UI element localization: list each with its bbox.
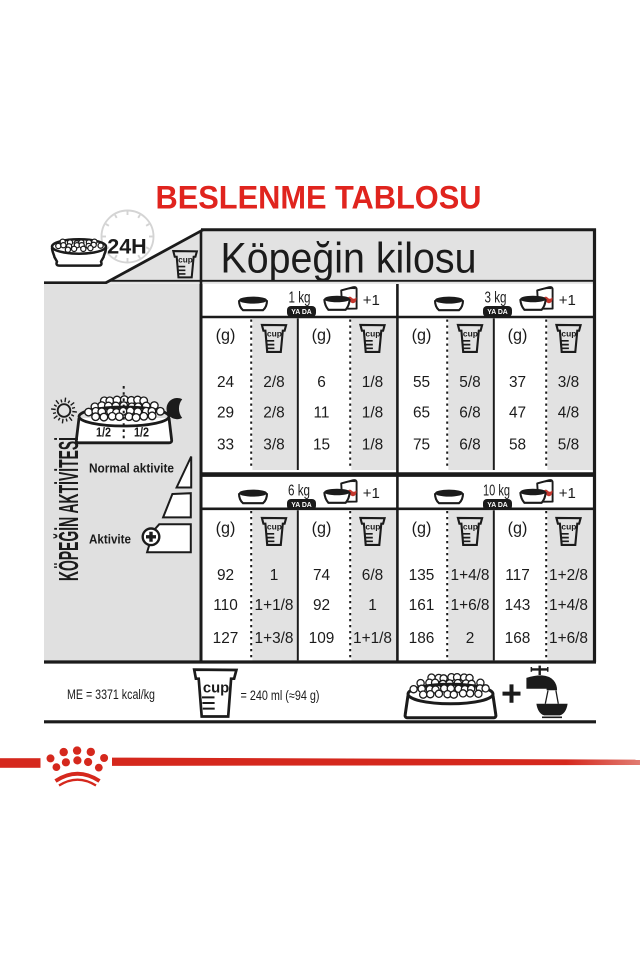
svg-text:(g): (g): [312, 520, 332, 538]
svg-text:+1: +1: [559, 485, 576, 502]
svg-text:6 kg: 6 kg: [288, 482, 310, 499]
svg-text:(g): (g): [216, 327, 236, 345]
svg-text:+1: +1: [363, 485, 380, 502]
svg-text:6/8: 6/8: [459, 437, 480, 454]
svg-text:1+3/8: 1+3/8: [255, 630, 294, 647]
svg-text:11: 11: [314, 405, 330, 422]
svg-text:74: 74: [313, 567, 331, 584]
svg-text:117: 117: [505, 567, 530, 584]
svg-text:(g): (g): [412, 327, 432, 345]
svg-text:1+2/8: 1+2/8: [549, 567, 588, 584]
svg-text:1/2: 1/2: [134, 425, 149, 440]
svg-text:24H: 24H: [107, 235, 146, 259]
svg-text:1+6/8: 1+6/8: [549, 630, 588, 647]
svg-text:1: 1: [270, 567, 279, 584]
svg-text:3 kg: 3 kg: [485, 289, 507, 306]
svg-text:cup: cup: [203, 681, 229, 697]
svg-text:135: 135: [409, 567, 435, 584]
svg-text:KÖPEĞİN AKTİVİTESİ: KÖPEĞİN AKTİVİTESİ: [53, 437, 84, 581]
svg-text:92: 92: [313, 597, 330, 614]
svg-text:2: 2: [466, 630, 475, 647]
svg-text:YA DA: YA DA: [291, 307, 312, 316]
svg-text:1: 1: [368, 597, 377, 614]
svg-text:YA DA: YA DA: [487, 307, 508, 316]
svg-text:33: 33: [217, 437, 234, 454]
svg-text:1/8: 1/8: [362, 437, 383, 454]
svg-text:186: 186: [409, 630, 435, 647]
svg-text:143: 143: [505, 597, 531, 614]
svg-text:15: 15: [313, 437, 330, 454]
svg-text:ME = 3371 kcal/kg: ME = 3371 kcal/kg: [67, 687, 155, 702]
svg-text:10 kg: 10 kg: [483, 482, 510, 499]
svg-text:4/8: 4/8: [558, 405, 579, 422]
svg-text:24: 24: [217, 374, 235, 391]
svg-text:6: 6: [317, 374, 326, 391]
svg-text:3/8: 3/8: [558, 374, 579, 391]
svg-text:29: 29: [217, 405, 234, 422]
svg-text:Köpeğin kilosu: Köpeğin kilosu: [221, 235, 477, 283]
svg-text:47: 47: [509, 405, 526, 422]
svg-text:Aktivite: Aktivite: [89, 533, 131, 547]
svg-text:109: 109: [309, 630, 335, 647]
svg-text:1+1/8: 1+1/8: [353, 630, 392, 647]
svg-text:1 kg: 1 kg: [289, 289, 311, 306]
svg-text:3/8: 3/8: [263, 437, 284, 454]
svg-text:(g): (g): [312, 327, 332, 345]
svg-text:6/8: 6/8: [459, 405, 480, 422]
svg-text:+1: +1: [559, 292, 576, 309]
svg-text:127: 127: [213, 630, 239, 647]
svg-text:110: 110: [213, 597, 238, 614]
svg-text:75: 75: [413, 437, 430, 454]
svg-text:= 240 ml (≈94 g): = 240 ml (≈94 g): [241, 688, 320, 703]
svg-text:1/8: 1/8: [362, 405, 383, 422]
svg-text:6/8: 6/8: [362, 567, 383, 584]
svg-text:1+4/8: 1+4/8: [549, 597, 588, 614]
svg-text:YA DA: YA DA: [291, 500, 312, 509]
svg-text:+1: +1: [363, 292, 380, 309]
svg-text:1+6/8: 1+6/8: [451, 597, 490, 614]
svg-text:58: 58: [509, 437, 526, 454]
svg-text:2/8: 2/8: [263, 405, 284, 422]
svg-text:1/8: 1/8: [362, 374, 383, 391]
svg-text:1+1/8: 1+1/8: [255, 597, 294, 614]
svg-text:5/8: 5/8: [558, 437, 579, 454]
svg-text:(g): (g): [412, 520, 432, 538]
svg-text:65: 65: [413, 405, 430, 422]
svg-text:(g): (g): [508, 327, 528, 345]
svg-text:92: 92: [217, 567, 234, 584]
svg-text:37: 37: [509, 374, 526, 391]
svg-text:161: 161: [409, 597, 435, 614]
svg-text:1/2: 1/2: [96, 425, 111, 440]
svg-text:BESLENME TABLOSU: BESLENME TABLOSU: [156, 180, 482, 216]
svg-text:1+4/8: 1+4/8: [451, 567, 490, 584]
svg-text:168: 168: [505, 630, 531, 647]
svg-text:YA DA: YA DA: [487, 500, 508, 509]
svg-text:(g): (g): [216, 520, 236, 538]
svg-text:(g): (g): [508, 520, 528, 538]
svg-text:2/8: 2/8: [263, 374, 284, 391]
svg-text:55: 55: [413, 374, 430, 391]
svg-text:Normal aktivite: Normal aktivite: [89, 462, 174, 476]
svg-text:5/8: 5/8: [459, 374, 480, 391]
